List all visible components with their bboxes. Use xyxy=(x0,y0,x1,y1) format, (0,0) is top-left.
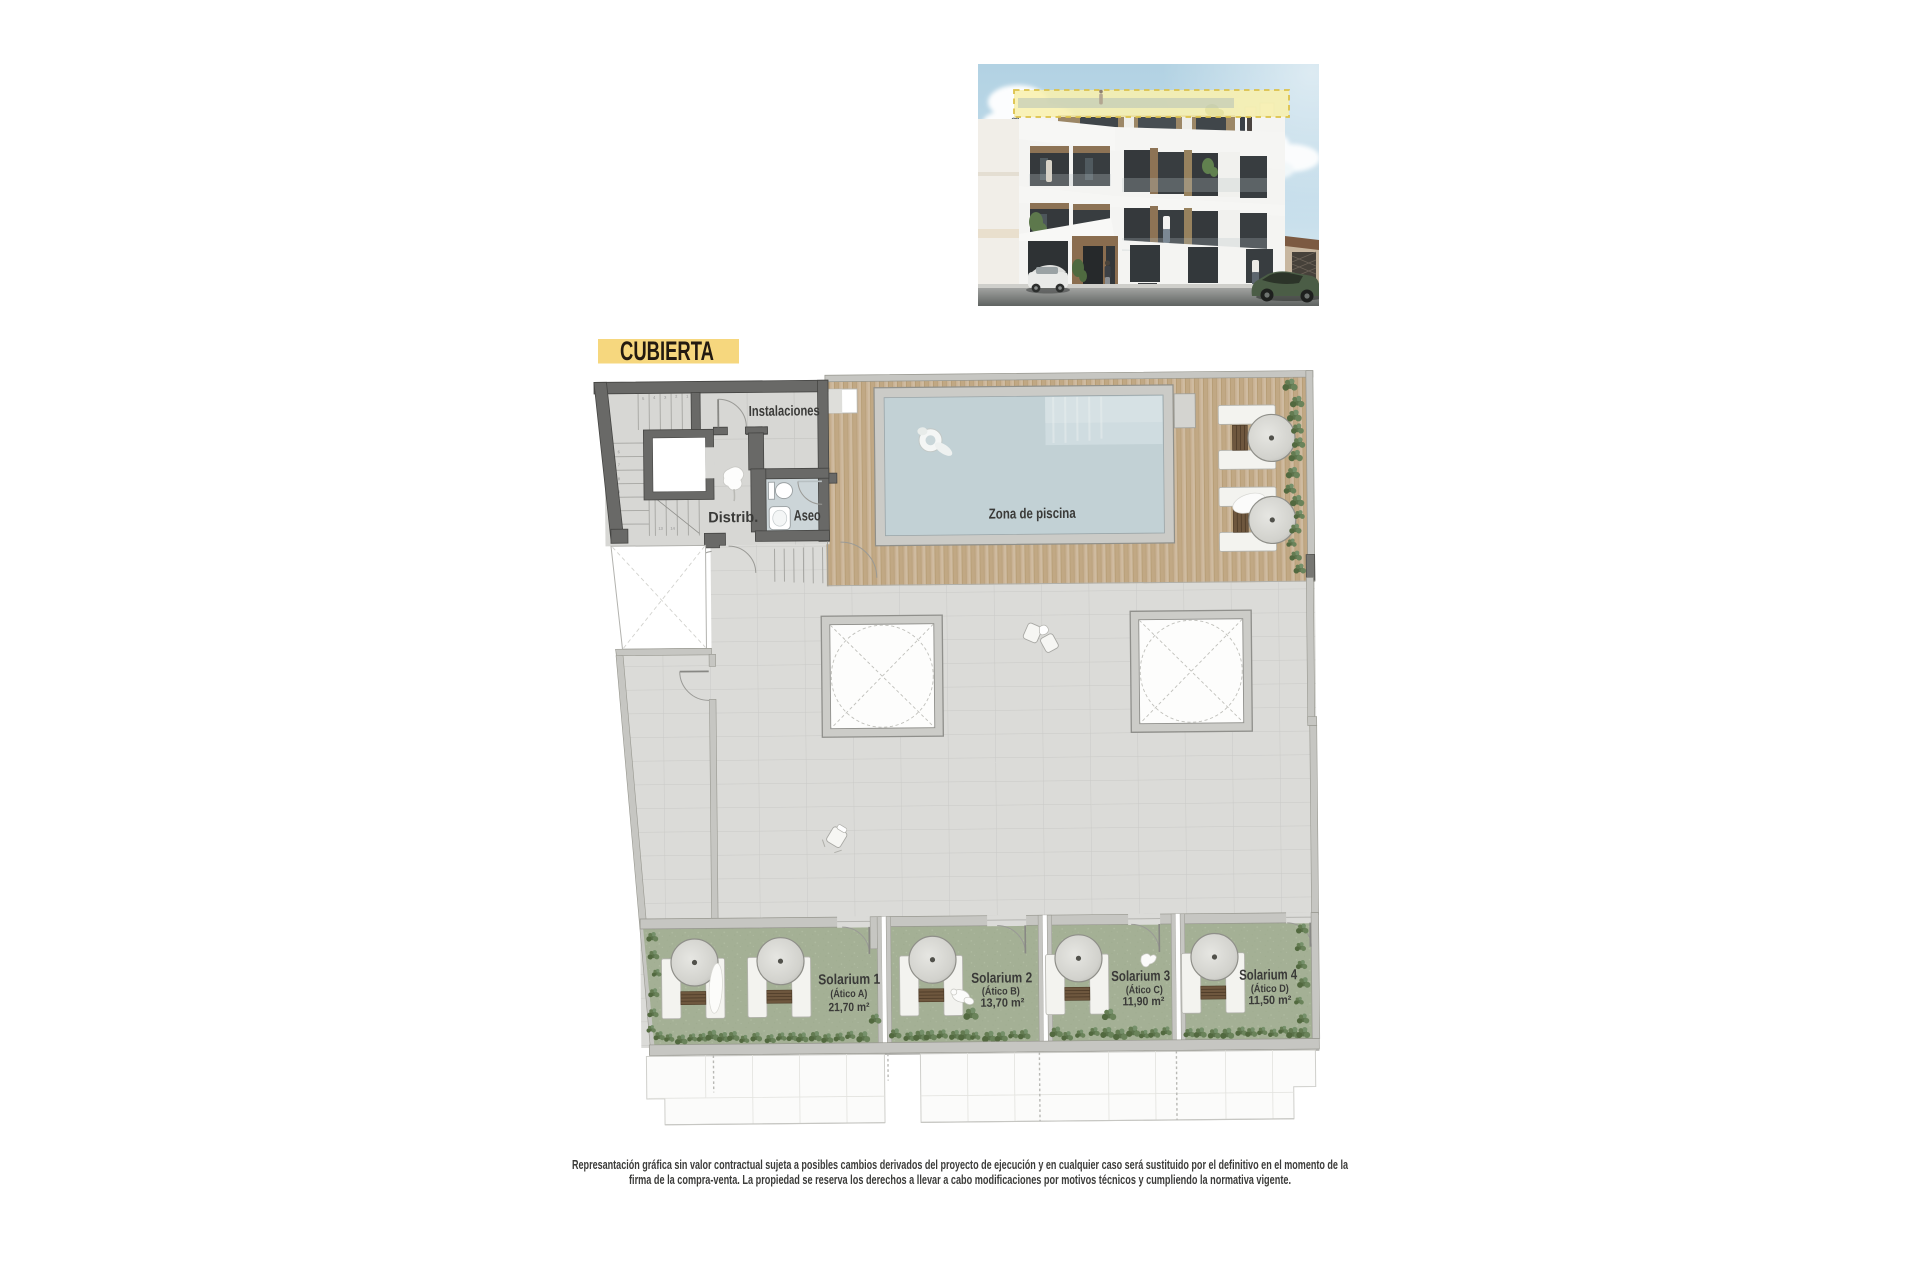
svg-text:Solarium 3: Solarium 3 xyxy=(1111,968,1170,985)
svg-text:Solarium 4: Solarium 4 xyxy=(1239,967,1297,984)
svg-text:firma de la compra-venta. La p: firma de la compra-venta. La propiedad s… xyxy=(629,1172,1291,1187)
svg-text:Instalaciones: Instalaciones xyxy=(749,403,820,420)
svg-text:(Ático A): (Ático A) xyxy=(830,987,867,1000)
svg-text:11,50 m²: 11,50 m² xyxy=(1248,993,1291,1007)
svg-text:Solarium 1: Solarium 1 xyxy=(818,972,880,989)
svg-text:13,70 m²: 13,70 m² xyxy=(980,995,1024,1009)
svg-text:Aseo: Aseo xyxy=(794,507,821,524)
svg-text:Zona de piscina: Zona de piscina xyxy=(989,506,1077,523)
svg-text:21,70 m²: 21,70 m² xyxy=(828,1000,869,1014)
svg-text:11,90 m²: 11,90 m² xyxy=(1122,994,1164,1008)
svg-text:Solarium 2: Solarium 2 xyxy=(971,970,1032,987)
svg-text:CUBIERTA: CUBIERTA xyxy=(620,336,714,366)
svg-text:Represantación gráfica sin val: Represantación gráfica sin valor contrac… xyxy=(572,1157,1348,1172)
svg-text:Distrib.: Distrib. xyxy=(708,509,758,526)
